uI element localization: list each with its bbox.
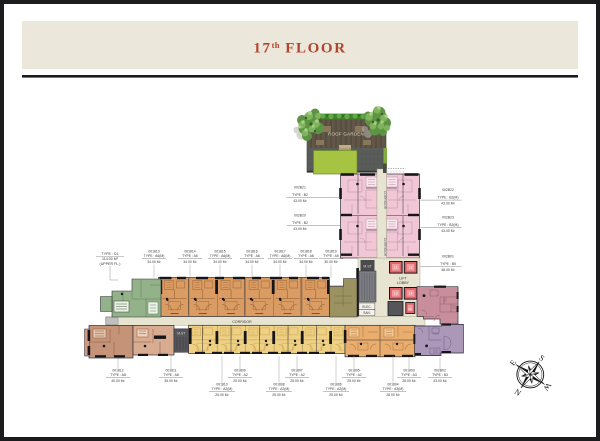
svg-text:CORRIDOR: CORRIDOR (383, 191, 387, 210)
svg-text:43.00 M²: 43.00 M² (441, 229, 455, 233)
svg-text:34.00 M²: 34.00 M² (299, 260, 313, 264)
svg-text:(UPPER FL.): (UPPER FL.) (100, 262, 121, 266)
svg-text:TYPE : A3(M): TYPE : A3(M) (383, 387, 404, 391)
svg-text:001803: 001803 (403, 369, 414, 373)
svg-text:001809: 001809 (234, 369, 245, 373)
svg-text:TYPE : A5: TYPE : A5 (323, 254, 339, 258)
svg-text:TYPE : B5: TYPE : B5 (440, 262, 456, 266)
svg-text:TYPE : A8: TYPE : A8 (163, 373, 179, 377)
svg-text:SAN.: SAN. (363, 311, 371, 315)
svg-text:TYPE : A8: TYPE : A8 (110, 373, 126, 377)
svg-text:TYPE : B2: TYPE : B2 (292, 221, 308, 225)
svg-text:M.ST: M.ST (177, 332, 185, 336)
svg-text:TYPE : A3: TYPE : A3 (401, 373, 417, 377)
svg-text:TYPE : A2: TYPE : A2 (232, 373, 248, 377)
svg-text:001805: 001805 (348, 369, 359, 373)
svg-text:40.00 M²: 40.00 M² (111, 379, 125, 383)
svg-text:25.00 M²: 25.00 M² (329, 393, 343, 397)
svg-text:002B23: 002B23 (442, 216, 454, 220)
svg-text:43.00 M²: 43.00 M² (441, 202, 455, 206)
svg-text:L1: L1 (394, 266, 398, 270)
svg-text:001819: 001819 (325, 250, 336, 254)
svg-text:25.00 M²: 25.00 M² (290, 379, 304, 383)
svg-text:TYPE : A2(M): TYPE : A2(M) (212, 387, 233, 391)
svg-text:FL: FL (409, 307, 413, 311)
svg-text:TYPE : A2(M): TYPE : A2(M) (326, 387, 347, 391)
svg-text:TYPE : A2(M): TYPE : A2(M) (269, 387, 290, 391)
svg-text:001808: 001808 (273, 383, 284, 387)
svg-text:002B20: 002B20 (294, 214, 306, 218)
svg-text:TYPE : A6: TYPE : A6 (244, 254, 260, 258)
svg-text:TYPE : B3: TYPE : B3 (432, 373, 448, 377)
svg-text:002B01: 002B01 (442, 255, 454, 259)
svg-text:35.00 M²: 35.00 M² (164, 379, 178, 383)
svg-text:TYPE : A2: TYPE : A2 (289, 373, 305, 377)
svg-text:48.00 M²: 48.00 M² (441, 268, 455, 272)
svg-text:34.00 M²: 34.00 M² (273, 260, 287, 264)
svg-text:001806: 001806 (330, 383, 341, 387)
svg-text:001814: 001814 (184, 250, 195, 254)
svg-text:001815: 001815 (214, 250, 225, 254)
svg-text:LOBBY: LOBBY (397, 281, 410, 285)
svg-text:43.00 M²: 43.00 M² (293, 227, 307, 231)
svg-text:34.00 M²: 34.00 M² (183, 260, 197, 264)
svg-text:001804: 001804 (387, 383, 398, 387)
svg-text:LIFT: LIFT (399, 277, 407, 281)
svg-text:43.00 M²: 43.00 M² (293, 199, 307, 203)
svg-text:L3: L3 (394, 292, 398, 296)
svg-text:TYPE : A2: TYPE : A2 (346, 373, 362, 377)
svg-text:34.00 M²: 34.00 M² (147, 260, 161, 264)
svg-text:001817: 001817 (274, 250, 285, 254)
svg-text:CORRIDOR: CORRIDOR (383, 238, 387, 257)
svg-text:28.00 M²: 28.00 M² (386, 393, 400, 397)
svg-text:34.00 M²: 34.00 M² (213, 260, 227, 264)
svg-text:ROOF GARDEN: ROOF GARDEN (328, 132, 364, 137)
svg-text:25.00 M²: 25.00 M² (233, 379, 247, 383)
svg-text:001811: 001811 (165, 369, 176, 373)
svg-text:TYPE : A6(M): TYPE : A6(M) (210, 254, 231, 258)
svg-text:002B21: 002B21 (294, 186, 306, 190)
svg-text:114.00 M²: 114.00 M² (102, 257, 119, 261)
svg-text:43.00 M²: 43.00 M² (433, 379, 447, 383)
svg-text:001807: 001807 (291, 369, 302, 373)
svg-text:ELEC.: ELEC. (362, 305, 371, 309)
svg-text:34.00 M²: 34.00 M² (245, 260, 259, 264)
svg-text:TYPE : B2(M): TYPE : B2(M) (438, 223, 459, 227)
svg-text:28.00 M²: 28.00 M² (402, 379, 416, 383)
svg-text:001812: 001812 (112, 369, 123, 373)
svg-text:25.00 M²: 25.00 M² (272, 393, 286, 397)
svg-text:25.00 M²: 25.00 M² (347, 379, 361, 383)
svg-text:TYPE : A6: TYPE : A6 (298, 254, 314, 258)
svg-text:30.00 M²: 30.00 M² (324, 260, 338, 264)
svg-text:TYPE : B2(M): TYPE : B2(M) (438, 195, 459, 199)
svg-text:TYPE : A6: TYPE : A6 (182, 254, 198, 258)
svg-text:002B22: 002B22 (442, 188, 454, 192)
svg-text:M.ST: M.ST (363, 265, 372, 269)
svg-text:001813: 001813 (148, 250, 159, 254)
svg-text:25.00 M²: 25.00 M² (215, 393, 229, 397)
svg-text:001816: 001816 (246, 250, 257, 254)
svg-text:L2: L2 (409, 266, 413, 270)
svg-text:001818: 001818 (300, 250, 311, 254)
svg-text:001810: 001810 (216, 383, 227, 387)
svg-text:TYPE : B2: TYPE : B2 (292, 193, 308, 197)
svg-text:17th FLOOR: 17th FLOOR (253, 40, 346, 57)
svg-text:L4: L4 (409, 292, 413, 296)
svg-text:TYPE : A6(M): TYPE : A6(M) (144, 254, 165, 258)
svg-text:002B02: 002B02 (434, 369, 446, 373)
svg-text:TYPE : D1: TYPE : D1 (102, 252, 119, 256)
svg-text:CORRIDOR: CORRIDOR (232, 320, 252, 324)
svg-text:TYPE : A6(M): TYPE : A6(M) (270, 254, 291, 258)
